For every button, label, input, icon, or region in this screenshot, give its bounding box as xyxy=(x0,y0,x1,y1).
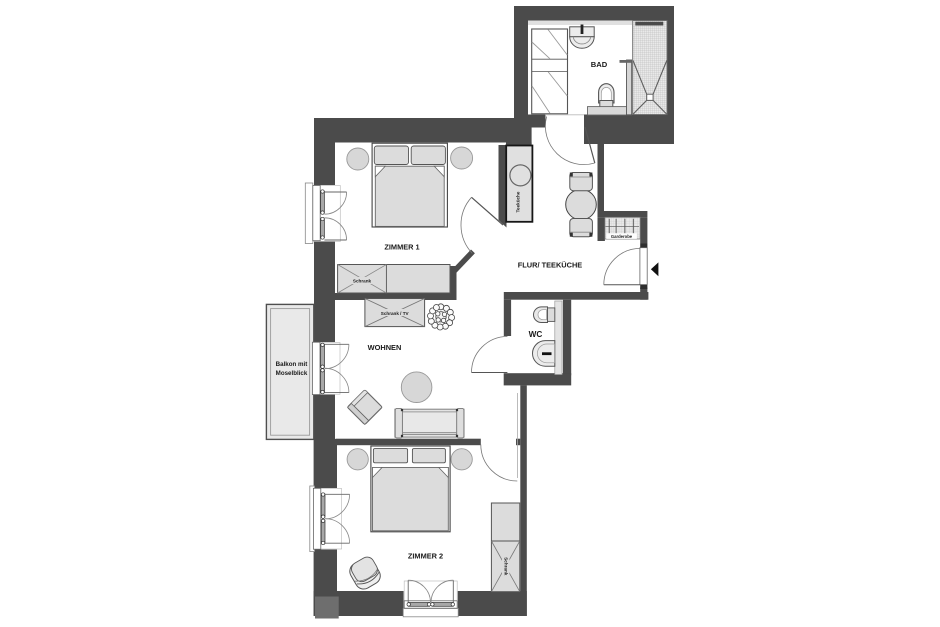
svg-text:FLUR/ TEEKÜCHE: FLUR/ TEEKÜCHE xyxy=(518,261,583,270)
svg-text:Teeküche: Teeküche xyxy=(516,191,521,212)
svg-text:ZIMMER 1: ZIMMER 1 xyxy=(384,242,419,251)
svg-text:WC: WC xyxy=(529,330,543,339)
svg-text:Schrank / TV: Schrank / TV xyxy=(381,311,410,316)
svg-text:Schrank: Schrank xyxy=(353,279,372,284)
svg-text:Garderobe: Garderobe xyxy=(611,234,633,239)
svg-text:ZIMMER 2: ZIMMER 2 xyxy=(408,552,443,561)
svg-text:BAD: BAD xyxy=(591,60,608,69)
svg-text:Moselblick: Moselblick xyxy=(276,370,308,377)
svg-text:Balkon mit: Balkon mit xyxy=(276,361,308,368)
svg-text:WOHNEN: WOHNEN xyxy=(368,343,402,352)
svg-text:Schrank: Schrank xyxy=(504,557,509,576)
